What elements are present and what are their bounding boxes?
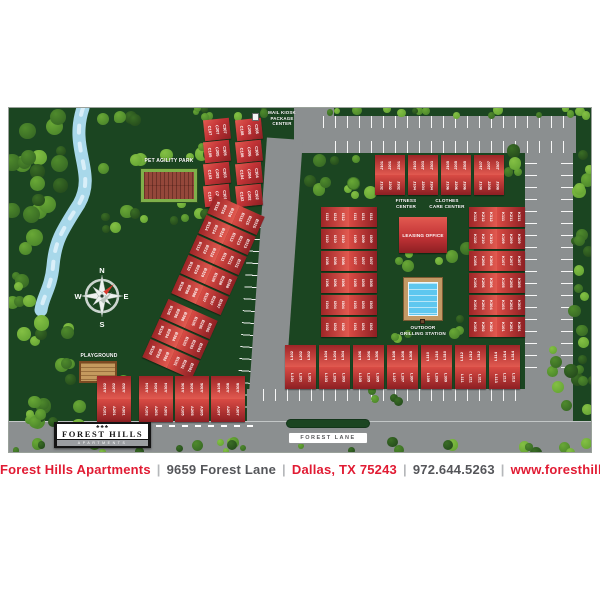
building-face: L104L204L304 <box>319 345 350 367</box>
tree <box>581 438 592 449</box>
tree <box>564 364 578 378</box>
unit-label: K205 <box>509 278 513 288</box>
compass-w: W <box>74 292 82 301</box>
unit-label: L101 <box>290 373 294 382</box>
building-face: L107L207L307 <box>387 367 418 389</box>
unit-label: B309 <box>225 278 233 288</box>
unit-label: B110 <box>186 261 193 271</box>
unit-label: A208 <box>226 383 230 393</box>
unit-label: B112 <box>195 241 202 251</box>
tree <box>394 445 404 453</box>
website-url: www.foresthillstx.com <box>511 462 600 477</box>
unit-label: B301 <box>187 362 195 372</box>
unit-label: K303 <box>517 300 521 310</box>
building-face: I105I205I305 <box>349 273 377 293</box>
unit-label: C207 <box>215 125 220 135</box>
unit-label: L203 <box>333 373 337 382</box>
unit-label: I109 <box>353 235 357 243</box>
unit-label: C107 <box>207 125 212 135</box>
building-A3: A106A206A306A105A205A305 <box>175 376 209 422</box>
unit-label: A101 <box>103 406 107 416</box>
building-L2: L104L204L304L103L203L303 <box>319 345 350 389</box>
unit-label: A305 <box>200 406 204 416</box>
unit-label: B113 <box>229 232 236 242</box>
unit-label: A308 <box>236 383 240 393</box>
unit-label: K111 <box>501 212 505 221</box>
tree <box>568 305 581 318</box>
unit-label: C303 <box>222 168 227 178</box>
tree <box>582 111 590 119</box>
tree <box>422 107 430 115</box>
tree <box>453 112 460 119</box>
tree <box>35 409 46 420</box>
leasing-office-building: LEASING OFFICE <box>399 217 447 253</box>
building-face: I103I203I303 <box>349 295 377 315</box>
building-face: L105L205L305 <box>353 367 384 389</box>
pool-water <box>408 282 438 316</box>
tree <box>574 235 586 247</box>
building-face: K111K211K311 <box>497 207 525 227</box>
unit-label: B307 <box>216 298 224 308</box>
building-face: I110I210I310 <box>321 229 349 249</box>
unit-label: C206 <box>247 147 252 157</box>
unit-label: K101 <box>501 322 505 332</box>
unit-label: B109 <box>210 272 218 282</box>
unit-label: C204 <box>247 169 252 179</box>
unit-label: J107 <box>479 161 483 170</box>
unit-label: A302 <box>122 383 126 393</box>
tree <box>574 183 586 195</box>
unit-label: L204 <box>333 351 337 360</box>
unit-label: J201 <box>388 161 392 170</box>
tree <box>507 144 521 158</box>
unit-label: B208 <box>184 284 192 294</box>
unit-label: K309 <box>517 234 521 244</box>
unit-label: C106 <box>239 147 244 157</box>
building-L4: L108L208L308L107L207L307 <box>387 345 418 389</box>
unit-label: L107 <box>392 373 396 382</box>
building-face: L111L211L311 <box>455 367 486 389</box>
unit-label: L314 <box>511 351 515 360</box>
unit-label: B101 <box>172 356 180 366</box>
unit-label: B115 <box>238 212 245 222</box>
unit-label: B311 <box>234 259 241 269</box>
tree <box>50 109 66 125</box>
unit-label: I309 <box>369 235 373 243</box>
unit-label: B209 <box>218 275 226 285</box>
unit-label: L208 <box>401 351 405 360</box>
unit-label: L108 <box>392 351 396 360</box>
property-logo: ♣♣♣ FOREST HILLS APARTMENTS <box>54 422 151 448</box>
unit-label: A301 <box>122 406 126 416</box>
unit-label: L103 <box>324 373 328 382</box>
tree <box>240 445 246 451</box>
tree <box>552 381 564 393</box>
unit-label: K202 <box>481 322 485 332</box>
unit-label: I105 <box>353 279 357 287</box>
unit-label: K206 <box>481 278 485 288</box>
building-I5: I104I204I304I103I203I303 <box>321 295 377 315</box>
unit-label: I110 <box>325 235 329 243</box>
unit-label: K310 <box>489 234 493 244</box>
parking-stalls <box>323 116 569 128</box>
unit-label: J302 <box>397 181 401 190</box>
separator: | <box>151 462 167 477</box>
unit-label: L110 <box>426 352 430 361</box>
building-C3: C105C205C305 <box>203 140 231 164</box>
unit-label: I112 <box>325 213 329 221</box>
building-face: I108I208I308 <box>321 251 349 271</box>
unit-label: L207 <box>401 373 405 382</box>
building-I3: I108I208I308I107I207I307 <box>321 251 377 271</box>
tree <box>14 282 23 291</box>
unit-label: K208 <box>481 256 485 266</box>
unit-label: K308 <box>489 256 493 266</box>
unit-label: A201 <box>112 406 116 416</box>
unit-label: B104 <box>157 325 165 335</box>
unit-label: B312 <box>209 247 217 257</box>
building-face: L103L203L303 <box>319 367 350 389</box>
building-face: K106K206K306 <box>469 273 497 293</box>
unit-label: I312 <box>341 213 345 221</box>
building-I4: I106I206I306I105I205I305 <box>321 273 377 293</box>
unit-label: L309 <box>443 373 447 382</box>
unit-label: I201 <box>361 323 365 331</box>
tree <box>580 292 589 301</box>
unit-label: I301 <box>369 323 373 331</box>
tree <box>38 441 46 449</box>
building-C8: C102C202C302 <box>235 184 263 208</box>
building-face: J101J201J301 <box>375 155 405 175</box>
separator: | <box>495 462 511 477</box>
building-face: L114L214L314 <box>489 345 520 367</box>
building-face: A107A207A307 <box>211 399 245 422</box>
tree <box>446 250 459 263</box>
tree <box>574 265 584 275</box>
unit-label: I308 <box>341 257 345 265</box>
building-face: J108J208J308 <box>474 175 504 195</box>
unit-label: I103 <box>353 301 357 309</box>
unit-label: K102 <box>473 322 477 332</box>
unit-label: B205 <box>198 319 206 329</box>
building-I2: I110I210I310I109I209I309 <box>321 229 377 249</box>
unit-label: L211 <box>469 374 473 383</box>
unit-label: K305 <box>517 278 521 288</box>
unit-label: I212 <box>333 213 337 221</box>
building-A2: A104A204A304A103A203A303 <box>139 376 173 422</box>
building-face: K112K212K312 <box>469 207 497 227</box>
street-name-sign: FOREST LANE <box>288 432 368 444</box>
unit-label: L105 <box>358 373 362 382</box>
unit-label: L104 <box>324 351 328 360</box>
unit-label: A303 <box>164 406 168 416</box>
tree <box>588 376 592 384</box>
building-face: K102K202K302 <box>469 317 497 337</box>
site-map: FOREST LANE LEASING OFFICE MAIL KIOSKPAC… <box>8 107 592 453</box>
unit-label: L212 <box>469 351 473 360</box>
unit-label: J106 <box>446 181 450 190</box>
unit-label: B310 <box>200 267 208 277</box>
building-face: K105K205K305 <box>497 273 525 293</box>
building-face: J104J204J304 <box>408 175 438 195</box>
mail-kiosk-icon <box>252 113 259 121</box>
unit-label: K307 <box>517 256 521 266</box>
building-A4: A108A208A308A107A207A307 <box>211 376 245 422</box>
unit-label: J206 <box>454 181 458 190</box>
unit-label: B211 <box>227 255 234 265</box>
unit-label: A307 <box>236 406 240 416</box>
tree <box>17 327 31 341</box>
unit-label: I101 <box>353 323 357 331</box>
unit-label: I111 <box>353 213 357 220</box>
building-face: A103A203A303 <box>139 399 173 422</box>
mail-kiosk-label: MAIL KIOSKPACKAGECENTER <box>259 110 305 127</box>
logo-subtitle: APARTMENTS <box>57 440 148 446</box>
unit-label: I204 <box>333 301 337 309</box>
parking-stalls <box>525 163 537 379</box>
unit-label: J307 <box>496 161 500 170</box>
building-face: A108A208A308 <box>211 376 245 399</box>
tree <box>21 150 36 165</box>
building-face: C105C205C305 <box>203 140 231 164</box>
building-face: I104I204I304 <box>321 295 349 315</box>
building-K2: K110K210K310K109K209K309 <box>469 229 525 249</box>
unit-label: B315 <box>252 218 260 228</box>
unit-label: L306 <box>375 351 379 360</box>
unit-label: I107 <box>353 257 357 265</box>
unit-label: K302 <box>489 322 493 332</box>
label-line: CENTER <box>259 121 305 127</box>
unit-label: L214 <box>503 351 507 360</box>
tree <box>23 295 36 308</box>
tree <box>549 346 557 354</box>
building-L5: L110L210L310L109L209L309 <box>421 345 452 389</box>
tree <box>402 260 414 272</box>
building-face: C104C204C304 <box>235 162 263 186</box>
unit-label: K112 <box>473 212 477 221</box>
unit-label: L206 <box>367 351 371 360</box>
building-face: I106I206I306 <box>321 273 349 293</box>
unit-label: L114 <box>494 352 498 361</box>
unit-label: A106 <box>181 383 185 393</box>
phone-number: 972.644.5263 <box>413 462 495 477</box>
label-line: CENTER <box>389 204 423 210</box>
tree <box>313 154 326 167</box>
unit-label: B202 <box>155 348 163 358</box>
unit-label: B303 <box>196 342 204 352</box>
unit-label: I210 <box>333 235 337 243</box>
unit-label: J102 <box>380 181 384 190</box>
tree <box>170 216 179 225</box>
unit-label: L305 <box>375 373 379 382</box>
unit-label: J203 <box>421 161 425 170</box>
unit-label: A304 <box>164 383 168 393</box>
unit-label: J204 <box>421 181 425 190</box>
unit-label: C101 <box>207 191 212 201</box>
tree <box>176 445 183 452</box>
building-face: K109K209K309 <box>497 229 525 249</box>
unit-label: A306 <box>200 383 204 393</box>
unit-label: L301 <box>307 373 311 382</box>
building-face: I107I207I307 <box>349 251 377 271</box>
unit-label: C307 <box>222 124 227 134</box>
building-K3: K108K208K308K107K207K307 <box>469 251 525 271</box>
playground-label: PLAYGROUND <box>67 353 131 359</box>
unit-label: J303 <box>430 161 434 170</box>
unit-label: L302 <box>307 351 311 360</box>
unit-label: K207 <box>509 256 513 266</box>
unit-label: B116 <box>213 201 220 211</box>
building-face: K101K201K301 <box>497 317 525 337</box>
unit-label: A207 <box>226 406 230 416</box>
unit-label: I310 <box>341 235 345 243</box>
unit-label: B114 <box>204 221 211 231</box>
compass-s: S <box>99 320 104 329</box>
unit-label: C305 <box>222 146 227 156</box>
unit-label: K204 <box>481 300 485 310</box>
tree <box>578 337 589 348</box>
tree <box>192 440 203 451</box>
unit-label: I207 <box>361 257 365 265</box>
unit-label: C302 <box>254 190 259 200</box>
unit-label: K212 <box>481 212 485 222</box>
building-face: K103K203K303 <box>497 295 525 315</box>
unit-label: K108 <box>473 256 477 266</box>
unit-label: A107 <box>217 406 221 416</box>
building-face: J105J205J305 <box>441 155 471 175</box>
tree <box>383 107 391 113</box>
tree <box>443 440 453 450</box>
tree <box>348 447 355 453</box>
unit-label: I304 <box>341 301 345 309</box>
building-I1: I112I212I312I111I211I311 <box>321 207 377 227</box>
building-face: I102I202I302 <box>321 317 349 337</box>
unit-label: A102 <box>103 383 107 393</box>
tree <box>101 213 110 222</box>
unit-label: K103 <box>501 300 505 310</box>
unit-label: J108 <box>479 181 483 190</box>
street-address: 9659 Forest Lane <box>167 462 276 477</box>
unit-label: J208 <box>487 181 491 190</box>
tree <box>585 165 592 174</box>
parking-stalls <box>335 141 567 153</box>
tree <box>102 225 110 233</box>
tree <box>129 114 141 126</box>
unit-label: L311 <box>477 374 481 383</box>
tree <box>114 111 126 123</box>
building-face: L113L213L313 <box>489 367 520 389</box>
tree <box>582 404 592 415</box>
tree <box>334 108 340 114</box>
unit-label: B107 <box>201 292 209 302</box>
unit-label: L303 <box>341 373 345 382</box>
unit-label: C205 <box>215 147 220 157</box>
unit-label: B213 <box>236 235 244 245</box>
tree <box>348 178 359 189</box>
building-face: C107C207C307 <box>203 118 231 142</box>
unit-label: K106 <box>473 278 477 288</box>
unit-label: C104 <box>239 169 244 179</box>
unit-label: I303 <box>369 301 373 309</box>
building-A1: A102A202A302A101A201A301 <box>97 376 131 422</box>
unit-label: I306 <box>341 279 345 287</box>
compass-n: N <box>99 266 104 275</box>
tree <box>99 449 106 454</box>
tree <box>61 358 72 369</box>
building-face: K107K207K307 <box>497 251 525 271</box>
unit-label: C208 <box>247 125 252 135</box>
unit-label: K201 <box>509 322 513 332</box>
tree <box>566 448 575 453</box>
building-face: I112I212I312 <box>321 207 349 227</box>
median-island <box>286 419 370 428</box>
unit-label: A202 <box>112 383 116 393</box>
building-face: I109I209I309 <box>349 229 377 249</box>
tree <box>578 355 587 364</box>
building-face: K104K204K304 <box>469 295 497 315</box>
unit-label: J205 <box>454 161 458 170</box>
building-K6: K102K202K302K101K201K301 <box>469 317 525 337</box>
unit-label: B304 <box>171 331 179 341</box>
unit-label: K105 <box>501 278 505 288</box>
building-face: K108K208K308 <box>469 251 497 271</box>
unit-label: K301 <box>517 322 521 332</box>
pet-agility-park-area <box>141 169 197 202</box>
building-J2: J103J203J303J104J204J304 <box>408 155 438 195</box>
outdoor-grilling-label: OUTDOORGRILLING STATION <box>392 325 454 336</box>
unit-label: J301 <box>397 161 401 170</box>
unit-label: C102 <box>239 191 244 201</box>
unit-label: J304 <box>430 181 434 190</box>
unit-label: L111 <box>460 374 464 383</box>
building-C1: C107C207C307 <box>203 118 231 142</box>
unit-label: K312 <box>489 212 493 222</box>
tree <box>576 325 588 337</box>
unit-label: L201 <box>299 373 303 382</box>
building-J3: J105J205J305J106J206J306 <box>441 155 471 195</box>
tree <box>28 396 41 409</box>
unit-label: B203 <box>189 339 197 349</box>
tree <box>578 150 588 160</box>
unit-label: A105 <box>181 406 185 416</box>
unit-label: L210 <box>435 351 439 360</box>
unit-label: L102 <box>290 351 294 360</box>
tree <box>65 374 76 385</box>
label-line: GRILLING STATION <box>392 331 454 337</box>
unit-label: K110 <box>473 234 477 243</box>
building-L3: L106L206L306L105L205L305 <box>353 345 384 389</box>
swimming-pool <box>403 277 443 321</box>
unit-label: L106 <box>358 351 362 360</box>
unit-label: B102 <box>148 345 156 355</box>
unit-label: B314 <box>218 227 226 237</box>
unit-label: C304 <box>254 168 259 178</box>
unit-label: A205 <box>190 406 194 416</box>
separator: | <box>276 462 292 477</box>
unit-label: C108 <box>239 125 244 135</box>
unit-label: B210 <box>193 264 201 274</box>
fitness-center-label: FITNESSCENTER <box>389 198 423 209</box>
unit-label: B308 <box>191 287 199 297</box>
unit-label: A108 <box>217 383 221 393</box>
pet-agility-park-label: PET AGILITY PARK <box>135 158 203 164</box>
unit-label: K306 <box>489 278 493 288</box>
building-face: C103C203C303 <box>203 162 231 186</box>
compass-e: E <box>123 292 128 301</box>
unit-label: I307 <box>369 257 373 265</box>
building-face: A101A201A301 <box>97 399 131 422</box>
unit-label: K104 <box>473 300 477 310</box>
